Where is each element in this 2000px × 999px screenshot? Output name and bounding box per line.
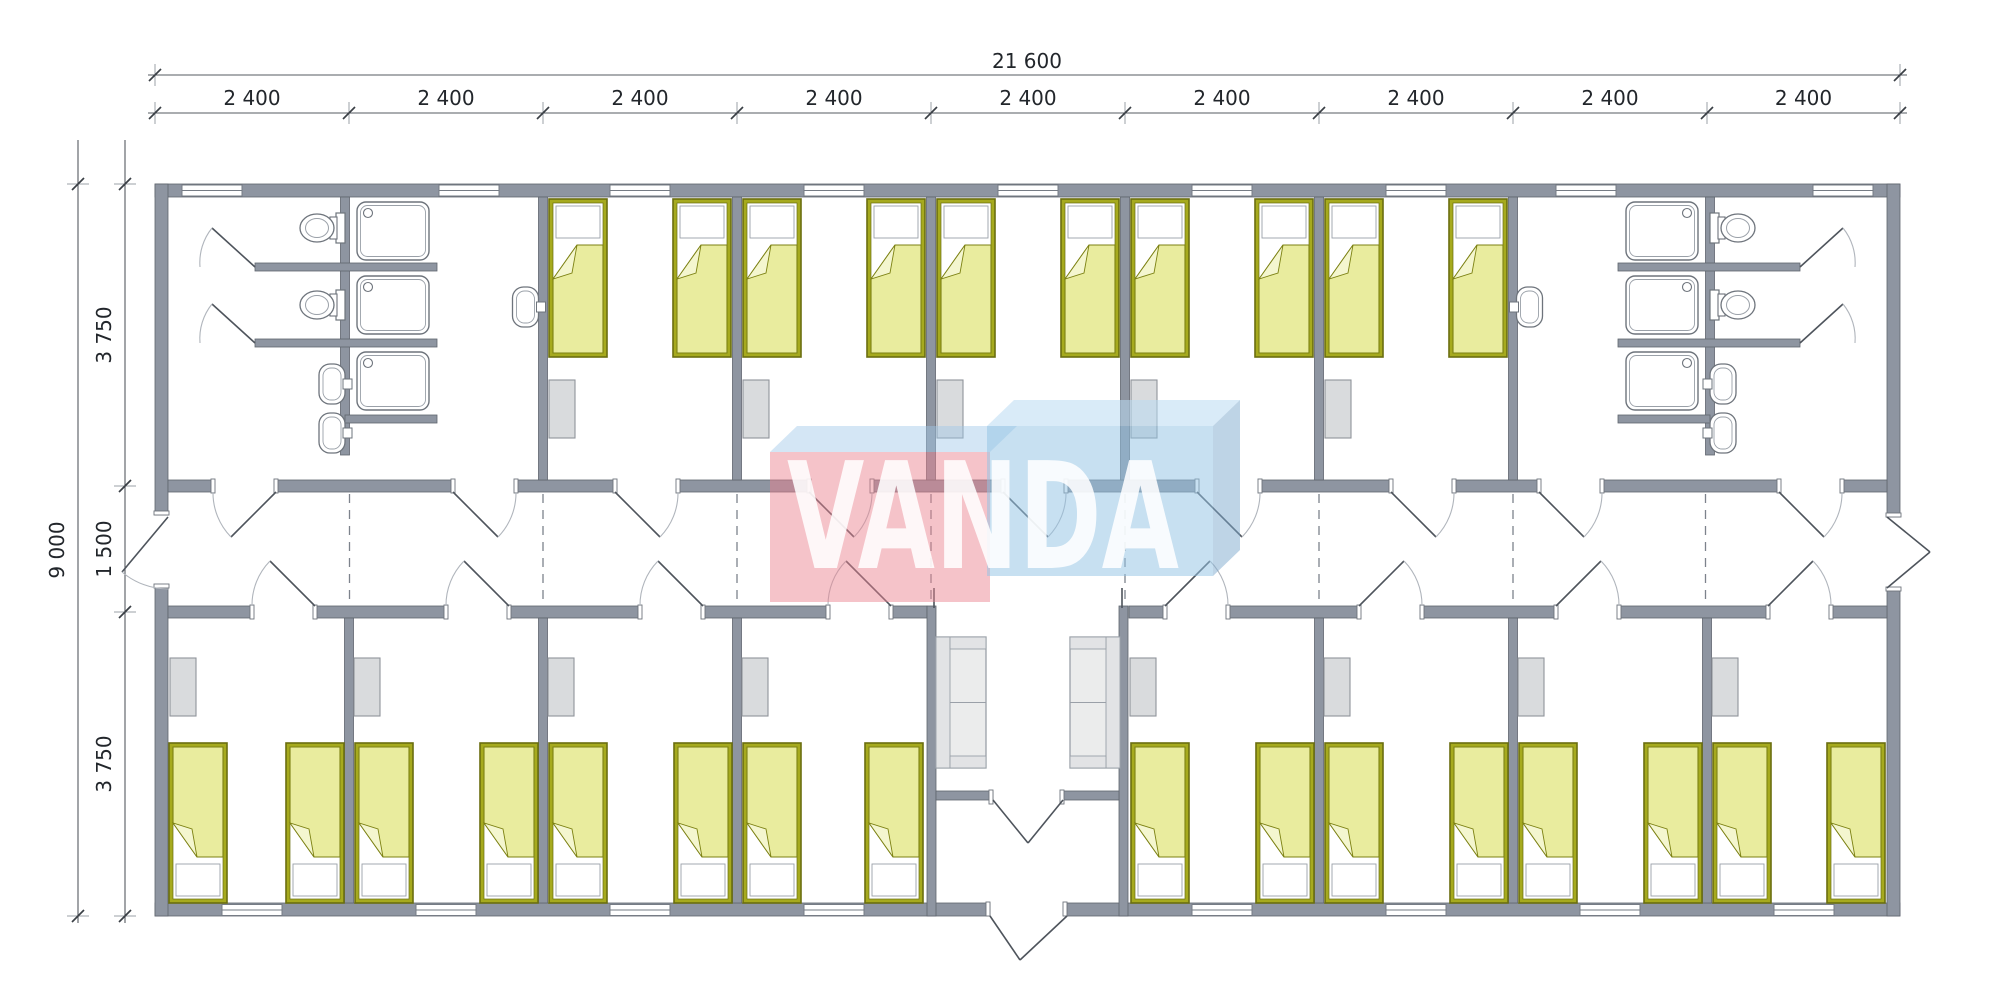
bed-pillow: [1834, 864, 1878, 896]
washbasin-tap: [1510, 302, 1519, 312]
door-leaf: [453, 492, 498, 537]
door-leaf: [1391, 492, 1436, 537]
dim-label-bay: 2 400: [611, 86, 668, 110]
toilet: [1710, 290, 1755, 320]
door-jamb: [989, 790, 993, 804]
single-bed: [1827, 743, 1885, 903]
wall: [1703, 618, 1712, 903]
door-swing-arc: [1843, 304, 1855, 343]
door-jamb: [701, 605, 705, 619]
wardrobe: [1518, 658, 1544, 716]
wall: [255, 339, 437, 347]
shower-cabin: [357, 202, 429, 260]
wall: [1454, 480, 1539, 492]
bed-pillow: [556, 864, 600, 896]
bed-pillow: [1457, 864, 1501, 896]
single-bed: [743, 743, 801, 903]
door-jamb: [986, 902, 990, 916]
dim-label-height-segment: 3 750: [92, 735, 116, 792]
door-jamb: [1537, 479, 1541, 493]
dim-label-bay: 2 400: [999, 86, 1056, 110]
wall: [733, 197, 742, 480]
wall: [927, 606, 936, 916]
single-bed: [1644, 743, 1702, 903]
bed-pillow: [750, 864, 794, 896]
wardrobe: [354, 658, 380, 716]
single-bed: [549, 743, 607, 903]
bed-pillow: [1720, 864, 1764, 896]
door-jamb: [1829, 605, 1833, 619]
door-leaf: [1556, 561, 1601, 606]
shower-cabin: [357, 276, 429, 334]
dim-label-bay: 2 400: [417, 86, 474, 110]
wall: [936, 791, 993, 800]
single-bed: [865, 743, 923, 903]
shower-drain: [1683, 209, 1692, 218]
single-bed: [867, 199, 925, 357]
door-jamb: [1777, 479, 1781, 493]
single-bed: [1256, 743, 1314, 903]
door-jamb: [676, 479, 680, 493]
single-bed: [1131, 743, 1189, 903]
door-leaf: [212, 228, 255, 267]
door-swing-arc: [640, 561, 658, 606]
single-bed: [1325, 199, 1383, 357]
door-leaf: [1800, 304, 1843, 343]
toilet: [300, 290, 345, 320]
wall: [516, 480, 615, 492]
door-jamb: [1840, 479, 1844, 493]
single-bed: [1519, 743, 1577, 903]
door-swing-arc: [213, 492, 231, 537]
door-swing-arc: [446, 561, 464, 606]
floor-plan-page: 21 6002 4002 4002 4002 4002 4002 4002 40…: [0, 0, 2000, 999]
wall: [1831, 606, 1887, 618]
single-bed: [1450, 743, 1508, 903]
shower-drain: [364, 283, 373, 292]
single-bed: [673, 199, 731, 357]
wardrobe: [1712, 658, 1738, 716]
wall: [345, 415, 437, 423]
wall: [255, 263, 437, 271]
wall: [168, 480, 213, 492]
door-jamb: [154, 584, 169, 588]
door-jamb: [1766, 605, 1770, 619]
door-jamb: [1886, 513, 1901, 517]
washbasin-tap: [343, 428, 352, 438]
sofa-armrest: [950, 637, 986, 649]
door-swing-arc: [1436, 492, 1454, 537]
washbasin-tap: [343, 379, 352, 389]
washbasin-tap: [1703, 428, 1712, 438]
wall: [315, 606, 446, 618]
door-jamb: [1452, 479, 1456, 493]
single-bed: [743, 199, 801, 357]
door-leaf: [1539, 492, 1584, 537]
door-swing-arc: [200, 304, 212, 343]
door-swing-arc: [1584, 492, 1602, 537]
door-leaf: [1768, 561, 1813, 606]
wall: [1887, 588, 1900, 916]
door-jamb: [274, 479, 278, 493]
bed-pillow: [176, 864, 220, 896]
wardrobe: [743, 380, 769, 438]
door-jamb: [211, 479, 215, 493]
bed-pillow: [1138, 206, 1182, 238]
single-bed: [1131, 199, 1189, 357]
sofa-backrest: [1106, 637, 1120, 768]
door-swing-arc: [498, 492, 516, 537]
door-leaf: [993, 800, 1028, 843]
single-bed: [549, 199, 607, 357]
washbasin-tap: [1703, 379, 1712, 389]
wall: [1887, 184, 1900, 517]
sofa-armrest: [1070, 637, 1106, 649]
bed-pillow: [750, 206, 794, 238]
door-jamb: [451, 479, 455, 493]
washbasin-tap: [537, 302, 546, 312]
door-jamb: [1389, 479, 1393, 493]
dim-label-bay: 2 400: [1581, 86, 1638, 110]
door-leaf: [990, 916, 1020, 960]
watermark-blue-box-side: [1213, 400, 1240, 576]
sofa-armrest: [950, 756, 986, 768]
door-leaf: [1887, 517, 1930, 552]
door-leaf: [1028, 800, 1063, 843]
dim-label-height-segment: 3 750: [92, 306, 116, 363]
wall: [155, 184, 168, 515]
wall: [1260, 480, 1391, 492]
shower-cabin: [1626, 276, 1698, 334]
door-swing-arc: [1813, 561, 1831, 606]
door-jamb: [313, 605, 317, 619]
dim-label-bay: 2 400: [805, 86, 862, 110]
vanda-watermark: VANDA: [770, 400, 1240, 603]
wall: [1509, 618, 1518, 903]
shower-drain: [1683, 359, 1692, 368]
watermark-text: VANDA: [787, 431, 1179, 603]
wall: [155, 585, 168, 916]
shower-drain: [1683, 283, 1692, 292]
door-jamb: [1357, 605, 1361, 619]
bed-pillow: [681, 864, 725, 896]
bed-pillow: [1263, 864, 1307, 896]
door-swing-arc: [200, 228, 212, 267]
single-bed: [355, 743, 413, 903]
door-leaf: [1800, 228, 1843, 267]
door-swing-arc: [252, 561, 270, 606]
wall: [1842, 480, 1887, 492]
bed-pillow: [1332, 864, 1376, 896]
door-jamb: [826, 605, 830, 619]
door-jamb: [889, 605, 893, 619]
wall: [1618, 263, 1800, 271]
wall: [539, 197, 548, 480]
wall: [1618, 339, 1800, 347]
wall: [345, 618, 354, 903]
dim-label-bay: 2 400: [1775, 86, 1832, 110]
door-leaf: [1020, 916, 1067, 960]
shower-drain: [364, 359, 373, 368]
door-swing-arc: [1242, 492, 1260, 537]
bed-pillow: [944, 206, 988, 238]
door-jamb: [613, 479, 617, 493]
door-swing-arc: [1404, 561, 1422, 606]
door-swing-arc: [1843, 228, 1855, 267]
single-bed: [286, 743, 344, 903]
wardrobe: [1130, 658, 1156, 716]
bed-pillow: [487, 864, 531, 896]
single-bed: [1449, 199, 1507, 357]
bed-pillow: [1456, 206, 1500, 238]
door-jamb: [1063, 902, 1067, 916]
door-jamb: [1163, 605, 1167, 619]
door-jamb: [1258, 479, 1262, 493]
dim-label-bay: 2 400: [1193, 86, 1250, 110]
single-bed: [480, 743, 538, 903]
wardrobe: [1325, 380, 1351, 438]
door-leaf: [122, 517, 168, 572]
wall: [276, 480, 453, 492]
wall: [1602, 480, 1779, 492]
bed-pillow: [874, 206, 918, 238]
door-leaf: [1359, 561, 1404, 606]
shower-cabin: [1626, 202, 1698, 260]
wall: [1509, 197, 1518, 480]
door-leaf: [270, 561, 315, 606]
wardrobe: [549, 380, 575, 438]
bed-pillow: [556, 206, 600, 238]
dim-label-bay: 2 400: [223, 86, 280, 110]
wall: [891, 606, 927, 618]
wall: [733, 618, 742, 903]
wall: [1618, 415, 1710, 423]
shower-drain: [364, 209, 373, 218]
lobby-furniture: [936, 637, 1120, 768]
door-jamb: [250, 605, 254, 619]
door-swing-arc: [660, 492, 678, 537]
door-jamb: [1226, 605, 1230, 619]
wall: [539, 618, 548, 903]
door-swing-arc: [1601, 561, 1619, 606]
bed-pillow: [1068, 206, 1112, 238]
door-jamb: [514, 479, 518, 493]
door-jamb: [507, 605, 511, 619]
wall: [1228, 606, 1359, 618]
bed-pillow: [680, 206, 724, 238]
single-bed: [169, 743, 227, 903]
wall: [1315, 618, 1324, 903]
door-leaf: [1887, 552, 1930, 588]
wardrobe: [170, 658, 196, 716]
dim-label-overall-width: 21 600: [992, 49, 1062, 73]
door-leaf: [615, 492, 660, 537]
door-jamb: [444, 605, 448, 619]
single-bed: [1255, 199, 1313, 357]
door-jamb: [1420, 605, 1424, 619]
wall: [509, 606, 640, 618]
door-jamb: [1617, 605, 1621, 619]
bed-pillow: [1526, 864, 1570, 896]
bed-pillow: [872, 864, 916, 896]
wall: [703, 606, 828, 618]
single-bed: [674, 743, 732, 903]
shower-cabin: [357, 352, 429, 410]
watermark-blue-box-top: [987, 400, 1240, 426]
dim-label-height-segment: 1 500: [92, 520, 116, 577]
single-bed: [937, 199, 995, 357]
door-jamb: [154, 511, 169, 515]
toilet: [300, 213, 345, 243]
door-jamb: [1554, 605, 1558, 619]
bed-pillow: [362, 864, 406, 896]
wall: [1422, 606, 1556, 618]
single-bed: [1325, 743, 1383, 903]
wall: [168, 606, 252, 618]
bed-pillow: [293, 864, 337, 896]
door-leaf: [212, 304, 255, 343]
door-leaf: [1779, 492, 1824, 537]
sofa: [1070, 637, 1120, 768]
single-bed: [1061, 199, 1119, 357]
door-leaf: [464, 561, 509, 606]
dim-label-overall-height: 9 000: [45, 521, 69, 578]
wardrobe: [1324, 658, 1350, 716]
door-jamb: [638, 605, 642, 619]
wall: [1063, 791, 1119, 800]
toilet: [1710, 213, 1755, 243]
bed-pillow: [1332, 206, 1376, 238]
wall: [1619, 606, 1768, 618]
bed-pillow: [1138, 864, 1182, 896]
sofa: [936, 637, 986, 768]
wardrobe: [742, 658, 768, 716]
wall: [1315, 197, 1324, 480]
sofa-armrest: [1070, 756, 1106, 768]
single-bed: [1713, 743, 1771, 903]
sofa-backrest: [936, 637, 950, 768]
door-swing-arc: [1824, 492, 1842, 537]
door-leaf: [231, 492, 276, 537]
door-jamb: [1600, 479, 1604, 493]
shower-cabin: [1626, 352, 1698, 410]
bed-pillow: [1651, 864, 1695, 896]
wardrobe: [548, 658, 574, 716]
dim-label-bay: 2 400: [1387, 86, 1444, 110]
door-leaf: [658, 561, 703, 606]
bed-pillow: [1262, 206, 1306, 238]
wall: [1129, 606, 1165, 618]
floor-plan-drawing: 21 6002 4002 4002 4002 4002 4002 4002 40…: [0, 0, 2000, 999]
